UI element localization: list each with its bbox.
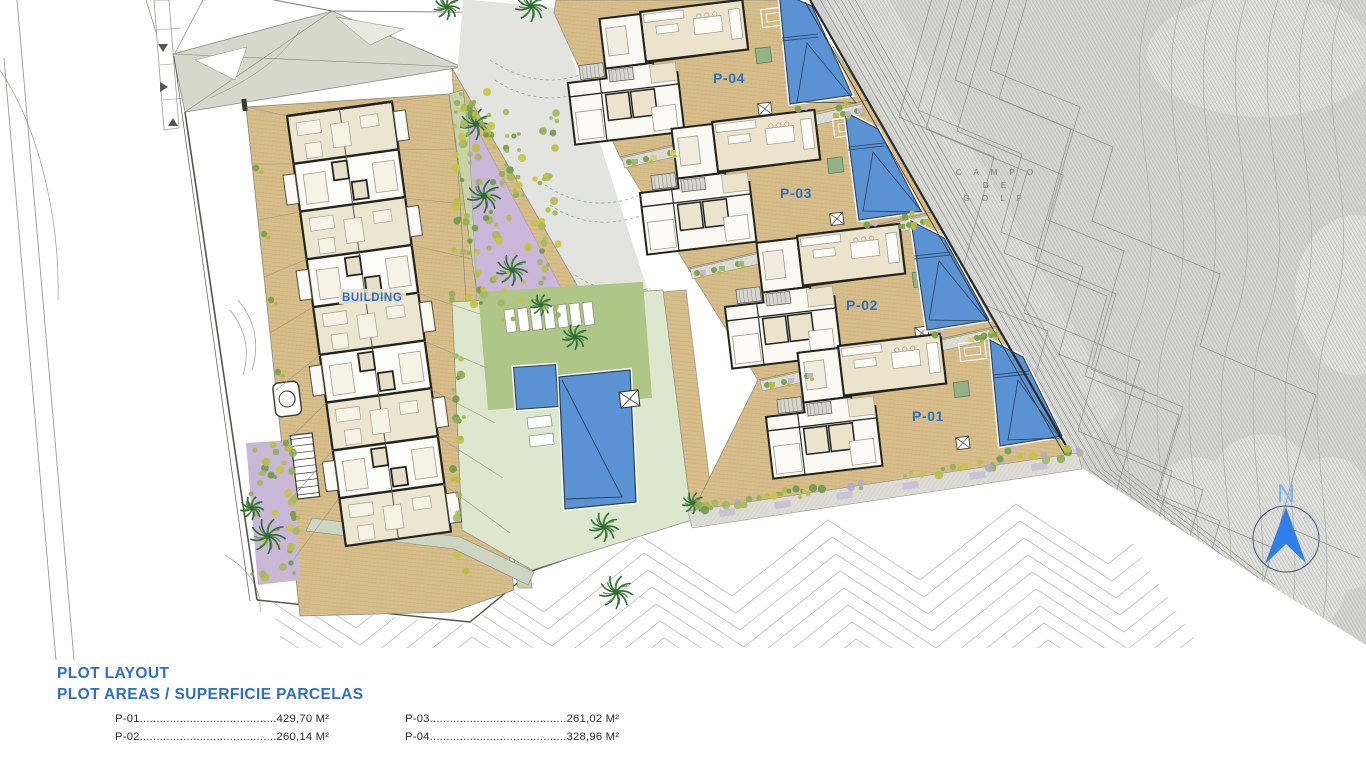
svg-text:G O L F: G O L F	[963, 194, 1026, 203]
svg-text:N: N	[1277, 480, 1295, 508]
svg-text:PLOT AREAS / SUPERFICIE PARCEL: PLOT AREAS / SUPERFICIE PARCELAS	[57, 686, 363, 703]
svg-text:C A M P O: C A M P O	[956, 168, 1038, 177]
svg-text:PLOT LAYOUT: PLOT LAYOUT	[57, 665, 169, 682]
svg-text:P-01: P-01	[912, 408, 944, 424]
svg-text:P-03..........................: P-03....................................…	[405, 713, 619, 725]
svg-text:D E: D E	[983, 181, 1011, 190]
svg-text:P-04: P-04	[713, 70, 745, 86]
svg-text:P-04..........................: P-04....................................…	[405, 731, 619, 743]
svg-text:P-03: P-03	[780, 185, 812, 201]
svg-text:P-02: P-02	[846, 297, 878, 313]
svg-text:BUILDING: BUILDING	[342, 292, 402, 304]
svg-text:P-02..........................: P-02....................................…	[115, 731, 329, 743]
svg-text:P-01..........................: P-01....................................…	[115, 713, 329, 725]
